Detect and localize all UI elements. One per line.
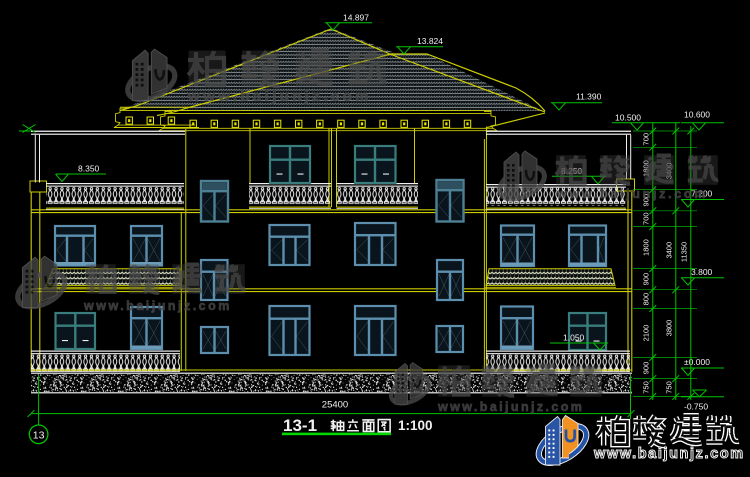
- svg-text:www.baijunjz.com: www.baijunjz.com: [437, 400, 584, 414]
- svg-text:10.500: 10.500: [615, 113, 641, 123]
- svg-text:13: 13: [33, 429, 45, 441]
- svg-text:13-1: 13-1: [283, 416, 317, 435]
- svg-text:900: 900: [642, 273, 651, 286]
- svg-text:±0.000: ±0.000: [684, 357, 710, 367]
- svg-text:900: 900: [642, 362, 651, 375]
- svg-text:11350: 11350: [680, 242, 689, 262]
- svg-text:1800: 1800: [642, 239, 651, 256]
- svg-text:www.baijunjz.com: www.baijunjz.com: [83, 299, 232, 313]
- svg-text:14.897: 14.897: [343, 13, 369, 23]
- svg-text:750: 750: [642, 381, 651, 394]
- svg-text:www.baijunjz.com: www.baijunjz.com: [556, 187, 708, 201]
- svg-text:3800: 3800: [665, 320, 674, 337]
- svg-text:750: 750: [665, 381, 674, 394]
- svg-text:www.baijunjz.com: www.baijunjz.com: [187, 88, 372, 105]
- svg-text:www.baijunjz.com: www.baijunjz.com: [593, 446, 745, 462]
- svg-text:800: 800: [642, 293, 651, 306]
- svg-text:3400: 3400: [665, 242, 674, 259]
- svg-text:13.824: 13.824: [417, 36, 443, 46]
- svg-text:11.390: 11.390: [576, 92, 602, 102]
- svg-text:25400: 25400: [322, 400, 348, 411]
- svg-text:10.600: 10.600: [684, 110, 710, 120]
- svg-text:700: 700: [642, 212, 651, 225]
- svg-text:1:100: 1:100: [398, 418, 433, 433]
- svg-text:2100: 2100: [642, 325, 651, 342]
- svg-text:1.050: 1.050: [563, 333, 585, 343]
- svg-text:700: 700: [642, 133, 651, 146]
- svg-text:-0.750: -0.750: [684, 402, 708, 412]
- svg-text:8.350: 8.350: [78, 164, 100, 174]
